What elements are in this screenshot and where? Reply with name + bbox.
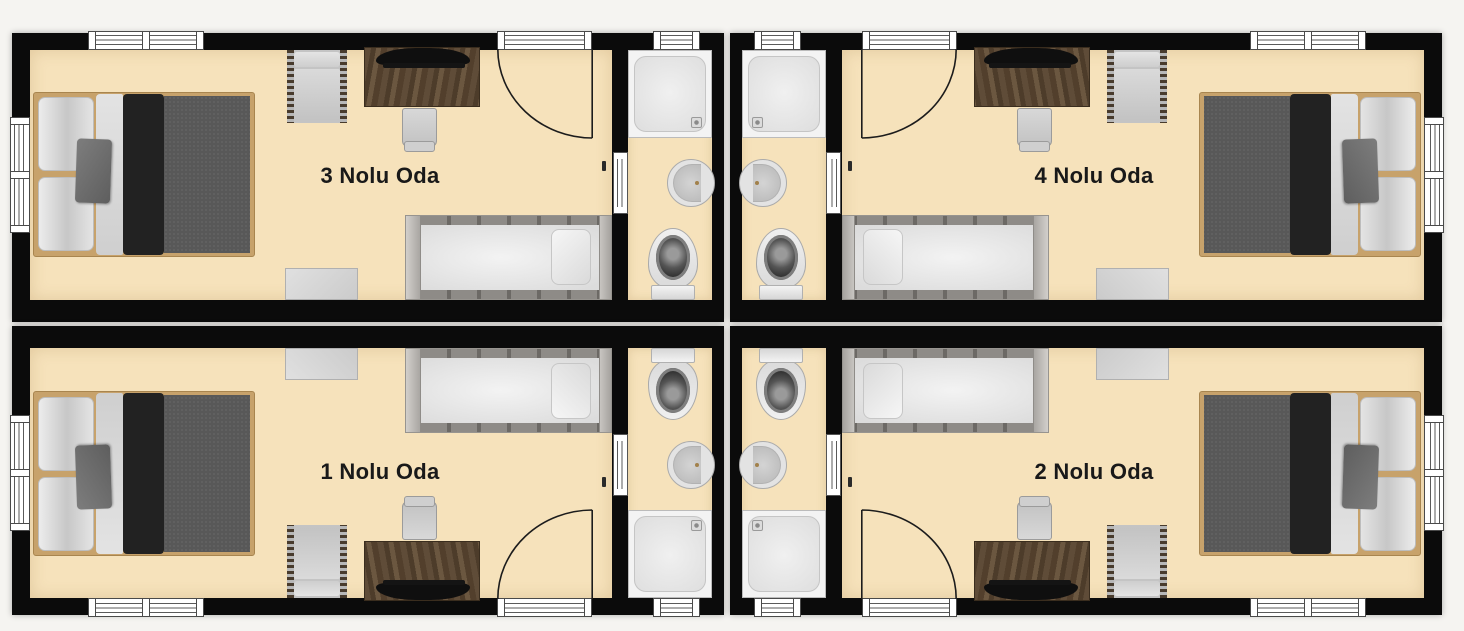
door-handle: [848, 477, 852, 487]
side-window: [10, 415, 30, 531]
room-label: 4 Nolu Oda: [984, 163, 1204, 189]
bed-rail: [421, 216, 599, 225]
headboard: [406, 216, 421, 299]
toilet: [648, 228, 698, 300]
window-post: [653, 31, 661, 50]
doorway-threshold: [869, 602, 950, 613]
window-glass: [761, 602, 794, 613]
armchair-back: [294, 52, 340, 67]
toilet-tank: [759, 348, 803, 363]
bathroom-window: [754, 31, 801, 50]
armchair-seat: [1114, 528, 1160, 579]
window-post: [754, 31, 762, 50]
footboard: [843, 216, 855, 299]
window-post: [1304, 31, 1312, 50]
window-post: [142, 31, 150, 50]
room-label: 2 Nolu Oda: [984, 459, 1204, 485]
accent-pillow: [1342, 138, 1379, 203]
bathroom-window: [754, 598, 801, 617]
side-table: [1096, 348, 1169, 380]
doorway-post: [862, 598, 870, 617]
door-handle: [602, 477, 606, 487]
entrance-doorway: [497, 31, 592, 50]
bathroom-door-leaf: [830, 159, 837, 207]
window: [88, 31, 204, 50]
monitor-stand: [383, 580, 465, 585]
bed-rail: [855, 290, 1033, 299]
entrance-door-swing-icon: [861, 509, 957, 599]
side-window: [1424, 117, 1444, 233]
room-label: 3 Nolu Oda: [270, 163, 490, 189]
exterior-wall: [12, 326, 724, 348]
window: [1250, 598, 1366, 617]
window-post: [793, 31, 801, 50]
accent-pillow: [75, 444, 112, 509]
window-post: [196, 31, 204, 50]
window-post: [1424, 117, 1444, 125]
entrance-doorway: [862, 598, 957, 617]
headboard: [1033, 216, 1048, 299]
shower: [742, 50, 826, 138]
window-post: [10, 415, 30, 423]
bathroom-window: [653, 31, 700, 50]
armchair-back: [1114, 52, 1160, 67]
doorway-post: [584, 31, 592, 50]
floor-plan: 3 Nolu Oda: [0, 0, 1464, 631]
desk-chair: [402, 501, 437, 540]
armchair-back: [1114, 581, 1160, 596]
window-post: [10, 225, 30, 233]
pillow: [863, 229, 903, 285]
doorway-post: [497, 31, 505, 50]
window-post: [692, 31, 700, 50]
bathroom-door: [826, 152, 841, 214]
bed-rail: [855, 349, 1033, 358]
window-post: [692, 598, 700, 617]
entrance-door-swing-icon: [497, 49, 593, 139]
doorway-threshold: [869, 35, 950, 46]
footboard: [599, 216, 611, 299]
washbasin-drain-icon: [755, 181, 759, 185]
monitor-stand: [383, 63, 465, 68]
washbasin-drain-icon: [695, 463, 699, 467]
bed-rail: [855, 423, 1033, 432]
window-post: [196, 598, 204, 617]
shower: [628, 510, 712, 598]
side-table: [1096, 268, 1169, 300]
exterior-wall: [12, 300, 724, 322]
entrance-doorway: [862, 31, 957, 50]
washbasin: [667, 159, 715, 207]
toilet-bowl-interior: [656, 235, 690, 280]
footboard: [599, 349, 611, 432]
duvet: [1204, 395, 1290, 552]
armchair-back: [294, 581, 340, 596]
window-post: [142, 598, 150, 617]
toilet: [648, 348, 698, 420]
washbasin-drain-icon: [755, 463, 759, 467]
bathroom-door: [826, 434, 841, 496]
bathroom-door: [613, 434, 628, 496]
monitor-stand: [989, 580, 1071, 585]
exterior-wall: [730, 326, 1442, 348]
window-post: [1424, 225, 1444, 233]
side-table: [285, 348, 358, 380]
window-glass: [660, 602, 693, 613]
window-post: [1424, 171, 1444, 179]
window-post: [1304, 598, 1312, 617]
headboard: [406, 349, 421, 432]
bathroom-door-leaf: [617, 441, 624, 489]
window-post: [1424, 523, 1444, 531]
shower-drain-icon: [752, 117, 763, 128]
bed-rail: [421, 423, 599, 432]
pillow: [551, 229, 591, 285]
bed-runner: [123, 393, 164, 554]
armchair: [287, 50, 347, 123]
bathroom-door: [613, 152, 628, 214]
duvet: [1204, 96, 1290, 253]
side-window: [10, 117, 30, 233]
pillow: [863, 363, 903, 419]
bed-runner: [1290, 94, 1331, 255]
window-post: [88, 31, 96, 50]
exterior-wall: [730, 300, 1442, 322]
toilet-bowl-interior: [764, 368, 798, 413]
door-handle: [602, 161, 606, 171]
double-bed: [1199, 391, 1421, 556]
toilet-tank: [651, 348, 695, 363]
bed-rail: [421, 349, 599, 358]
armchair-seat: [1114, 69, 1160, 120]
doorway-post: [949, 31, 957, 50]
window-post: [1358, 598, 1366, 617]
double-bed: [33, 391, 255, 556]
single-bed: [842, 215, 1049, 300]
doorway-post: [497, 598, 505, 617]
shower: [628, 50, 712, 138]
double-bed: [33, 92, 255, 257]
double-bed: [1199, 92, 1421, 257]
accent-pillow: [75, 138, 112, 203]
toilet-bowl-interior: [764, 235, 798, 280]
door-handle: [848, 161, 852, 171]
window-post: [10, 117, 30, 125]
bed-rail: [855, 216, 1033, 225]
washbasin: [739, 159, 787, 207]
window-post: [1424, 415, 1444, 423]
armchair-seat: [294, 69, 340, 120]
window: [88, 598, 204, 617]
container-module-room-2: 2 Nolu Oda: [730, 326, 1442, 615]
toilet-bowl-interior: [656, 368, 690, 413]
doorway-post: [949, 598, 957, 617]
container-module-room-4: 4 Nolu Oda: [730, 33, 1442, 322]
entrance-doorway: [497, 598, 592, 617]
washbasin: [739, 441, 787, 489]
entrance-door-swing-icon: [861, 49, 957, 139]
headboard: [1033, 349, 1048, 432]
toilet-tank: [651, 285, 695, 300]
window-post: [10, 523, 30, 531]
bathroom-door-leaf: [830, 441, 837, 489]
washbasin-drain-icon: [695, 181, 699, 185]
window-post: [754, 598, 762, 617]
room-label: 1 Nolu Oda: [270, 459, 490, 485]
desk-chair: [1017, 501, 1052, 540]
bed-rail: [421, 290, 599, 299]
doorway-post: [862, 31, 870, 50]
window-post: [793, 598, 801, 617]
bathroom-window: [653, 598, 700, 617]
side-table: [285, 268, 358, 300]
armchair: [287, 525, 347, 598]
duvet: [164, 395, 250, 552]
toilet: [756, 348, 806, 420]
window-glass: [660, 35, 693, 46]
shower-drain-icon: [752, 520, 763, 531]
container-module-room-1: 1 Nolu Oda: [12, 326, 724, 615]
window-post: [1250, 31, 1258, 50]
entrance-door-swing-icon: [497, 509, 593, 599]
window: [1250, 31, 1366, 50]
accent-pillow: [1342, 444, 1379, 509]
desk-chair: [402, 108, 437, 147]
window-post: [1424, 469, 1444, 477]
toilet: [756, 228, 806, 300]
armchair: [1107, 50, 1167, 123]
armchair-seat: [294, 528, 340, 579]
duvet: [164, 96, 250, 253]
shower-drain-icon: [691, 520, 702, 531]
armchair: [1107, 525, 1167, 598]
window-post: [10, 171, 30, 179]
container-module-room-3: 3 Nolu Oda: [12, 33, 724, 322]
desk-chair: [1017, 108, 1052, 147]
pillow: [551, 363, 591, 419]
single-bed: [842, 348, 1049, 433]
window-post: [10, 469, 30, 477]
shower-drain-icon: [691, 117, 702, 128]
toilet-tank: [759, 285, 803, 300]
window-post: [1358, 31, 1366, 50]
monitor-stand: [989, 63, 1071, 68]
window-post: [1250, 598, 1258, 617]
bathroom-door-leaf: [617, 159, 624, 207]
shower: [742, 510, 826, 598]
bed-runner: [123, 94, 164, 255]
single-bed: [405, 348, 612, 433]
bed-runner: [1290, 393, 1331, 554]
window-glass: [761, 35, 794, 46]
single-bed: [405, 215, 612, 300]
side-window: [1424, 415, 1444, 531]
doorway-post: [584, 598, 592, 617]
doorway-threshold: [504, 602, 585, 613]
window-post: [653, 598, 661, 617]
washbasin: [667, 441, 715, 489]
footboard: [843, 349, 855, 432]
window-post: [88, 598, 96, 617]
doorway-threshold: [504, 35, 585, 46]
